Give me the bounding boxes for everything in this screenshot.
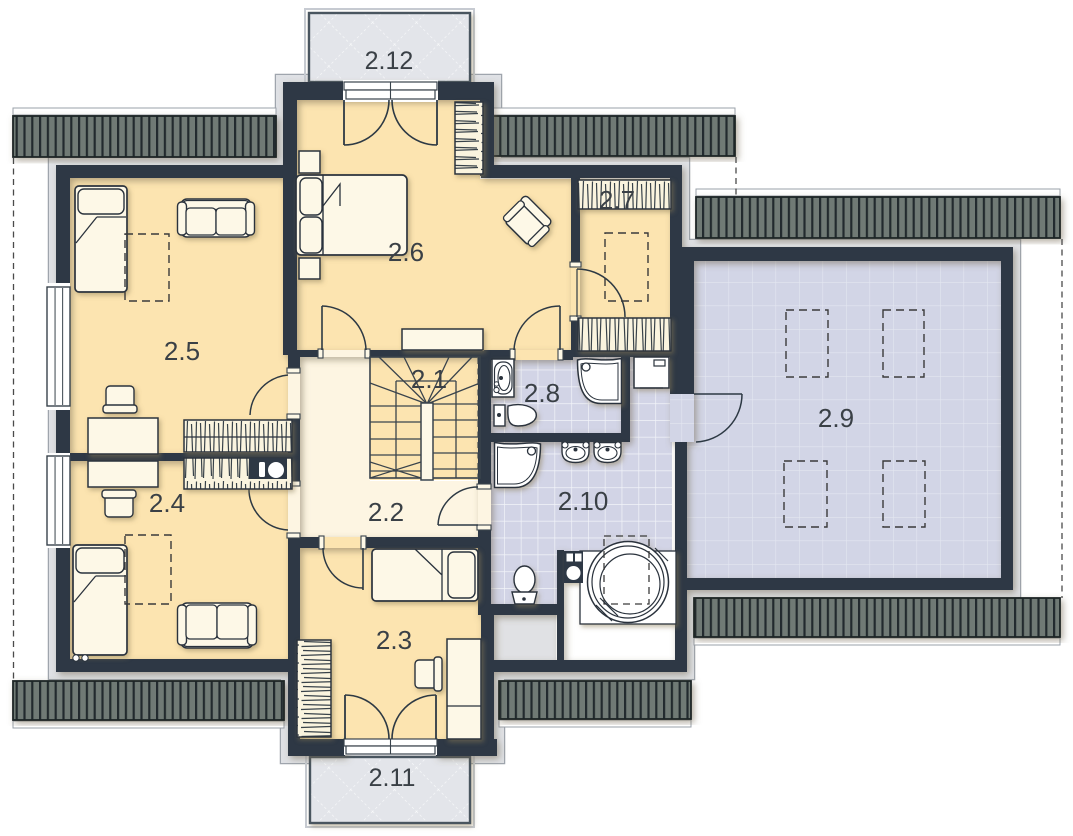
svg-text:2.5: 2.5 (164, 336, 200, 366)
svg-text:2.3: 2.3 (376, 625, 412, 655)
svg-text:2.10: 2.10 (558, 486, 609, 516)
svg-text:2.7: 2.7 (599, 185, 635, 215)
svg-text:2.11: 2.11 (369, 764, 416, 792)
svg-text:2.6: 2.6 (388, 237, 424, 267)
svg-text:2.2: 2.2 (368, 497, 404, 527)
svg-text:2.12: 2.12 (365, 47, 414, 75)
svg-text:2.9: 2.9 (818, 403, 854, 433)
svg-text:2.1: 2.1 (411, 364, 447, 394)
svg-text:2.4: 2.4 (149, 488, 185, 518)
svg-text:2.8: 2.8 (524, 378, 560, 408)
